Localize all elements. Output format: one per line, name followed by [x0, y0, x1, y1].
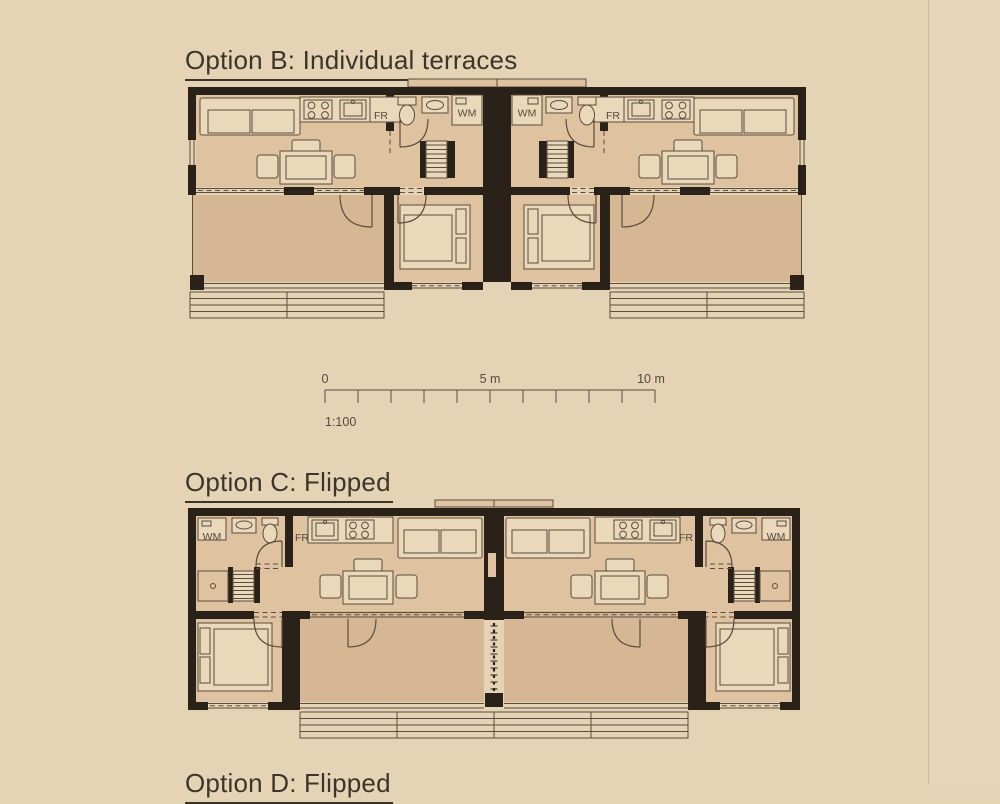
scale-ratio-label: 1:100 [325, 415, 356, 429]
floor-plan-option-b: FR WM FR WM [188, 77, 806, 320]
floor-plan-option-c: WM FR WM FR [188, 497, 800, 742]
fridge-label: FR [374, 110, 388, 122]
fence-post [485, 693, 503, 707]
fridge-label: FR [606, 110, 620, 122]
unit-right [497, 79, 806, 318]
option-d-title: Option D: Flipped [185, 768, 393, 804]
scale-bar: 0 5 m 10 m 1:100 [320, 368, 665, 433]
option-b-title: Option B: Individual terraces [185, 45, 519, 81]
washing-machine-label: WM [518, 108, 537, 120]
scale-zero-label: 0 [322, 372, 329, 386]
scale-10m-label: 10 m [637, 372, 665, 386]
page-edge-line [928, 0, 929, 785]
page: { "page": { "background": "#e5d3b6" }, "… [0, 0, 1000, 785]
unit-right [494, 500, 800, 738]
fridge-label: FR [679, 532, 693, 544]
washing-machine-label: WM [203, 531, 222, 543]
unit-left [188, 500, 494, 738]
washing-machine-label: WM [458, 108, 477, 120]
unit-left [188, 79, 497, 318]
page-edge-shade [929, 0, 1000, 785]
washing-machine-label: WM [767, 531, 786, 543]
scale-bar-ticks [325, 390, 655, 403]
scale-5m-label: 5 m [480, 372, 501, 386]
fridge-label: FR [295, 532, 309, 544]
